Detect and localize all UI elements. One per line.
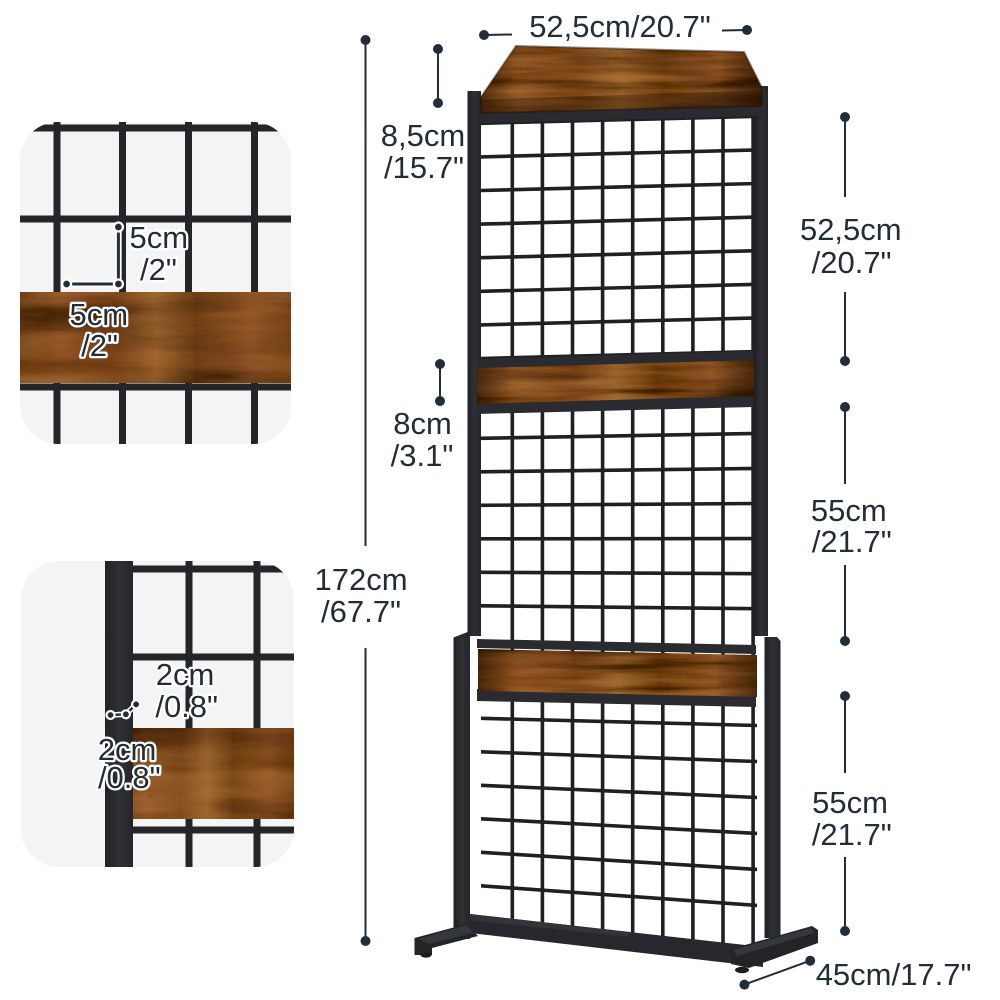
svg-text:8,5cm: 8,5cm (381, 118, 465, 153)
svg-text:52,5cm: 52,5cm (800, 212, 902, 247)
svg-text:2cm: 2cm (156, 657, 215, 692)
svg-text:/15.7": /15.7" (384, 150, 464, 185)
svg-text:55cm: 55cm (811, 493, 887, 528)
svg-text:52,5cm/20.7": 52,5cm/20.7" (529, 9, 711, 44)
svg-text:/21.7": /21.7" (812, 524, 892, 559)
svg-text:8cm: 8cm (393, 406, 452, 441)
svg-text:/0.8": /0.8" (155, 689, 218, 724)
svg-text:/2": /2" (140, 252, 177, 287)
svg-text:5cm: 5cm (130, 220, 189, 255)
svg-text:/2": /2" (81, 328, 118, 363)
svg-text:45cm/17.7": 45cm/17.7" (816, 957, 972, 992)
svg-text:/0.8": /0.8" (98, 760, 161, 795)
svg-text:172cm: 172cm (314, 562, 407, 597)
svg-text:/21.7": /21.7" (812, 817, 892, 852)
svg-text:/20.7": /20.7" (812, 245, 892, 280)
svg-text:55cm: 55cm (812, 785, 888, 820)
svg-text:5cm: 5cm (70, 297, 129, 332)
svg-text:/67.7": /67.7" (321, 594, 401, 629)
svg-text:/3.1": /3.1" (391, 438, 454, 473)
